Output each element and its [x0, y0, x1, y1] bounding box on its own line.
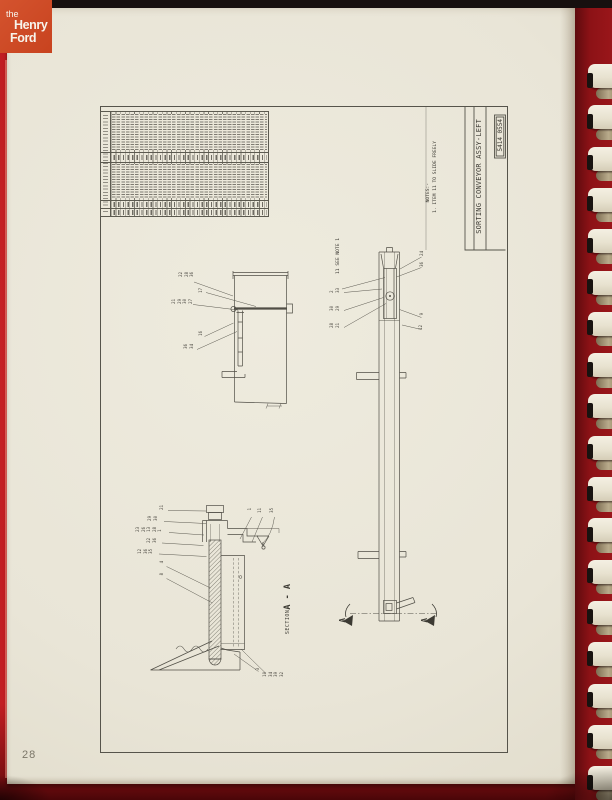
callout-item-number: 1	[248, 508, 253, 510]
callout-section-view: 2236	[147, 538, 157, 543]
binding-tooth-slot	[587, 527, 593, 542]
binding-tooth-wedge	[596, 335, 612, 346]
callout-section-view: 11	[258, 508, 263, 513]
binding-tooth-slot	[587, 155, 593, 170]
callout-end-view: 21293027	[172, 299, 193, 304]
callout-section-view: 8	[160, 573, 165, 575]
callout-item-number: 17	[199, 288, 204, 293]
callout-item-number: 10	[263, 672, 268, 677]
callout-item-number: 30	[154, 516, 159, 521]
book-photo: the Henry Ford	[0, 0, 612, 800]
callout-item-number: 8	[160, 573, 165, 575]
callout-item-number: 21	[172, 299, 177, 304]
callout-item-number: 36	[153, 538, 158, 543]
callout-item-number: 1	[158, 527, 163, 532]
section-cut-arrows	[343, 604, 437, 626]
callout-item-number: 21	[160, 505, 165, 510]
callout-item-number: 4	[160, 561, 165, 563]
callout-item-number: 29	[148, 516, 153, 521]
end-view	[222, 271, 293, 409]
callout-section-view: 2930	[148, 516, 158, 521]
binding-tooth-wedge	[596, 790, 612, 800]
callout-end-view: 17	[199, 288, 204, 293]
callout-section-view: 123635	[138, 549, 154, 554]
notes-item-1: 1. ITEM 11 TO SLIDE FREELY	[433, 141, 438, 213]
callout-item-number: 33	[336, 288, 341, 293]
callout-section-view: 35	[270, 508, 275, 513]
callout-item-number: 35	[149, 549, 154, 554]
binding-tooth-wedge	[596, 542, 612, 553]
callout-side-view: 2821	[330, 323, 340, 328]
callout-section-view: 3	[256, 668, 261, 670]
callout-item-number: 11	[258, 508, 263, 513]
callout-end-view: 16	[199, 331, 204, 336]
binding-tooth-slot	[587, 320, 593, 335]
callout-side-view: 233	[330, 288, 340, 293]
binding-tooth-wedge	[596, 459, 612, 470]
side-view-leaders	[342, 257, 422, 330]
callout-item-number: 23	[136, 527, 141, 532]
callout-side-view: 9	[420, 313, 425, 315]
callout-end-view: 3634	[184, 344, 194, 349]
notes-heading: NOTES:-	[426, 183, 431, 202]
binding-tooth-slot	[587, 196, 593, 211]
callout-item-number: 22	[147, 538, 152, 543]
binding-tooth-slot	[587, 362, 593, 377]
callout-item-number: 22	[179, 272, 184, 277]
binding-tooth-slot	[587, 444, 593, 459]
binding-tooth-slot	[587, 114, 593, 129]
page-number: 28	[22, 749, 36, 761]
binding-tooth-slot	[587, 733, 593, 748]
callout-item-number: 9	[420, 313, 425, 315]
callout-item-number: 16	[199, 331, 204, 336]
callout-side-view: 24	[420, 251, 425, 256]
drawing-title: SORTING CONVEYOR ASSY-LEFT	[475, 119, 483, 234]
binding-tooth-wedge	[596, 88, 612, 99]
section-arrow-letter-right: A	[420, 618, 429, 623]
binding-tooth-wedge	[596, 418, 612, 429]
callout-item-number: 36	[420, 262, 425, 267]
callout-section-view: 232613281	[136, 527, 163, 532]
binding-tooth-wedge	[596, 624, 612, 635]
binding-tooth-wedge	[596, 211, 612, 222]
binding-tooth-slot	[587, 486, 593, 501]
technical-drawing-linework	[0, 0, 612, 800]
callout-item-number: 34	[190, 344, 195, 349]
binding-tooth-wedge	[596, 583, 612, 594]
callout-item-number: 12	[138, 549, 143, 554]
callout-side-view: 3029	[330, 306, 340, 311]
side-view-note: 11 SEE NOTE 1	[336, 238, 341, 274]
binding-tooth-slot	[587, 651, 593, 666]
callout-section-view: 4	[160, 561, 165, 563]
binding-tooth-wedge	[596, 501, 612, 512]
binding-tooth-slot	[587, 279, 593, 294]
callout-side-view: 36	[420, 262, 425, 267]
binding-tooth-slot	[587, 238, 593, 253]
binding-tooth-wedge	[596, 294, 612, 305]
callout-item-number: 28	[330, 323, 335, 328]
binding-tooth-wedge	[596, 377, 612, 388]
callout-section-view: 10343932	[263, 672, 284, 677]
binding-tooth-wedge	[596, 170, 612, 181]
callout-item-number: 27	[189, 299, 194, 304]
binding-tooth-wedge	[596, 666, 612, 677]
callout-item-number: 36	[184, 344, 189, 349]
callout-end-view: 222836	[179, 272, 195, 277]
spiral-binding	[575, 8, 612, 800]
callout-item-number: 24	[420, 251, 425, 256]
binding-tooth-slot	[587, 609, 593, 624]
binding-tooth-wedge	[596, 253, 612, 264]
callout-section-view: 21	[160, 505, 165, 510]
callout-item-number: 35	[270, 508, 275, 513]
callout-side-view: 12	[419, 325, 424, 330]
callout-item-number: 12	[419, 325, 424, 330]
callout-item-number: 30	[330, 306, 335, 311]
section-arrow-letter-left: A	[338, 618, 347, 623]
section-label: SECTIONA - A	[278, 584, 297, 634]
binding-tooth-slot	[587, 568, 593, 583]
binding-tooth-slot	[587, 692, 593, 707]
binding-tooth-slot	[587, 73, 593, 88]
section-view	[151, 506, 280, 671]
callout-item-number: 29	[336, 306, 341, 311]
callout-section-view: 1	[248, 508, 253, 510]
binding-tooth-slot	[587, 775, 593, 790]
callout-item-number: 21	[336, 323, 341, 328]
binding-tooth-wedge	[596, 748, 612, 759]
drawing-number: 5414 0554	[497, 119, 504, 152]
callout-item-number: 36	[190, 272, 195, 277]
binding-tooth-wedge	[596, 707, 612, 718]
binding-tooth-slot	[587, 403, 593, 418]
callout-item-number: 32	[280, 672, 285, 677]
callout-item-number: 2	[330, 288, 335, 293]
binding-tooth-wedge	[596, 129, 612, 140]
callout-item-number: 3	[256, 668, 261, 670]
